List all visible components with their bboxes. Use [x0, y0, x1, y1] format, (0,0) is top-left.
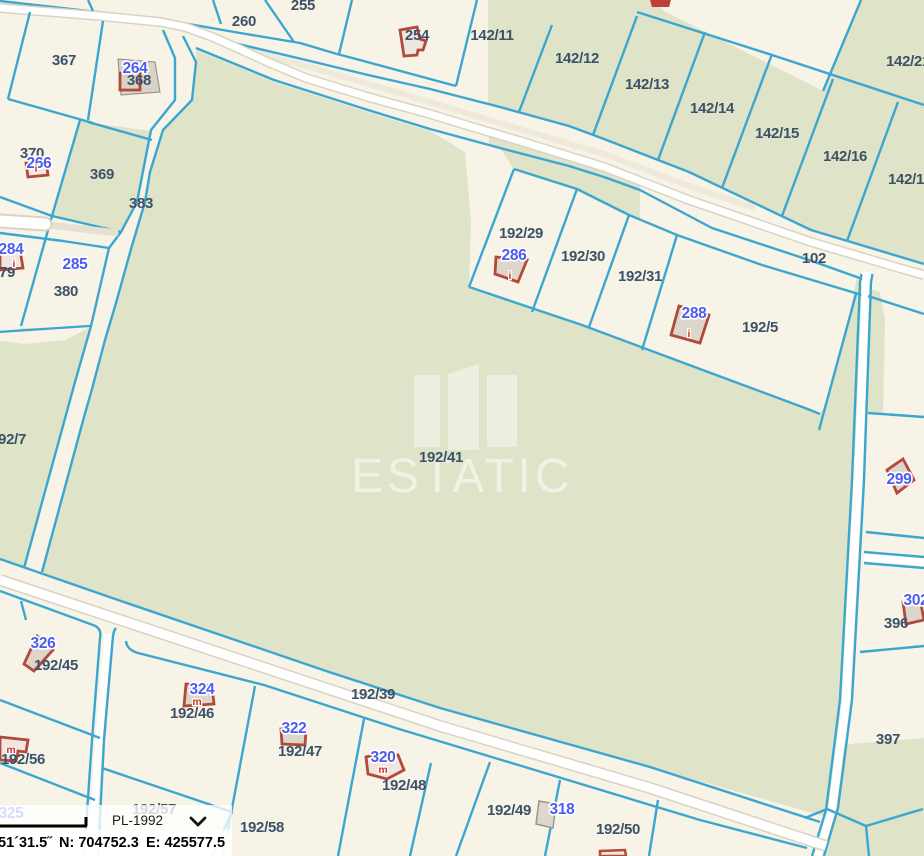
svg-text:326: 326 [31, 635, 57, 652]
svg-text:192/5: 192/5 [742, 319, 778, 336]
svg-text:N: 704752.3: N: 704752.3 [59, 835, 139, 851]
svg-text:142/12: 142/12 [555, 50, 599, 67]
svg-text:142/16: 142/16 [823, 148, 867, 165]
svg-text:192/31: 192/31 [618, 268, 662, 285]
svg-text:i: i [35, 163, 38, 175]
svg-text:254: 254 [405, 27, 430, 44]
svg-text:192/30: 192/30 [561, 248, 605, 265]
svg-text:192/50: 192/50 [596, 821, 640, 838]
svg-text:192/29: 192/29 [499, 225, 543, 242]
svg-text:192/47: 192/47 [278, 743, 322, 760]
svg-text:255: 255 [291, 0, 315, 14]
svg-text:142/14: 142/14 [690, 100, 735, 117]
svg-text:318: 318 [550, 801, 576, 818]
svg-text:142/15: 142/15 [755, 125, 799, 142]
svg-text:383: 383 [129, 195, 153, 212]
svg-text:299: 299 [887, 471, 913, 488]
svg-text:142/11: 142/11 [470, 27, 513, 44]
svg-text:142/21: 142/21 [886, 53, 924, 70]
svg-text:142/13: 142/13 [625, 76, 669, 93]
svg-text:192/39: 192/39 [351, 686, 395, 703]
svg-text:369: 369 [90, 166, 114, 183]
svg-text:i: i [688, 328, 691, 340]
svg-text:192/45: 192/45 [34, 657, 78, 674]
svg-text:102: 102 [802, 250, 826, 267]
svg-text:m: m [192, 696, 201, 708]
svg-text:396: 396 [884, 615, 908, 632]
svg-text:192/41: 192/41 [419, 449, 463, 466]
svg-text:192/48: 192/48 [382, 777, 426, 794]
svg-text:m: m [6, 744, 15, 756]
svg-text:322: 322 [282, 720, 307, 737]
svg-text:302: 302 [904, 592, 924, 609]
svg-text:i: i [13, 258, 16, 270]
svg-text:266: 266 [27, 155, 53, 172]
svg-text:192/58: 192/58 [240, 819, 284, 836]
svg-text:286: 286 [502, 247, 528, 264]
svg-text:PL-1992: PL-1992 [112, 813, 163, 828]
svg-text:i: i [509, 270, 512, 282]
svg-text:264: 264 [123, 60, 149, 77]
svg-text:380: 380 [54, 283, 78, 300]
svg-text:284: 284 [0, 241, 24, 258]
svg-text:192/49: 192/49 [487, 802, 531, 819]
svg-text:192/7: 192/7 [0, 431, 26, 448]
svg-text:m: m [378, 764, 387, 776]
svg-text:E: 425577.5: E: 425577.5 [146, 835, 225, 851]
svg-text:260: 260 [232, 13, 256, 30]
svg-text:285: 285 [63, 256, 89, 273]
svg-text:288: 288 [682, 305, 708, 322]
svg-text:51´31.5˝: 51´31.5˝ [0, 835, 53, 851]
svg-text:142/17: 142/17 [888, 171, 924, 188]
svg-text:397: 397 [876, 731, 900, 748]
svg-text:367: 367 [52, 52, 76, 69]
